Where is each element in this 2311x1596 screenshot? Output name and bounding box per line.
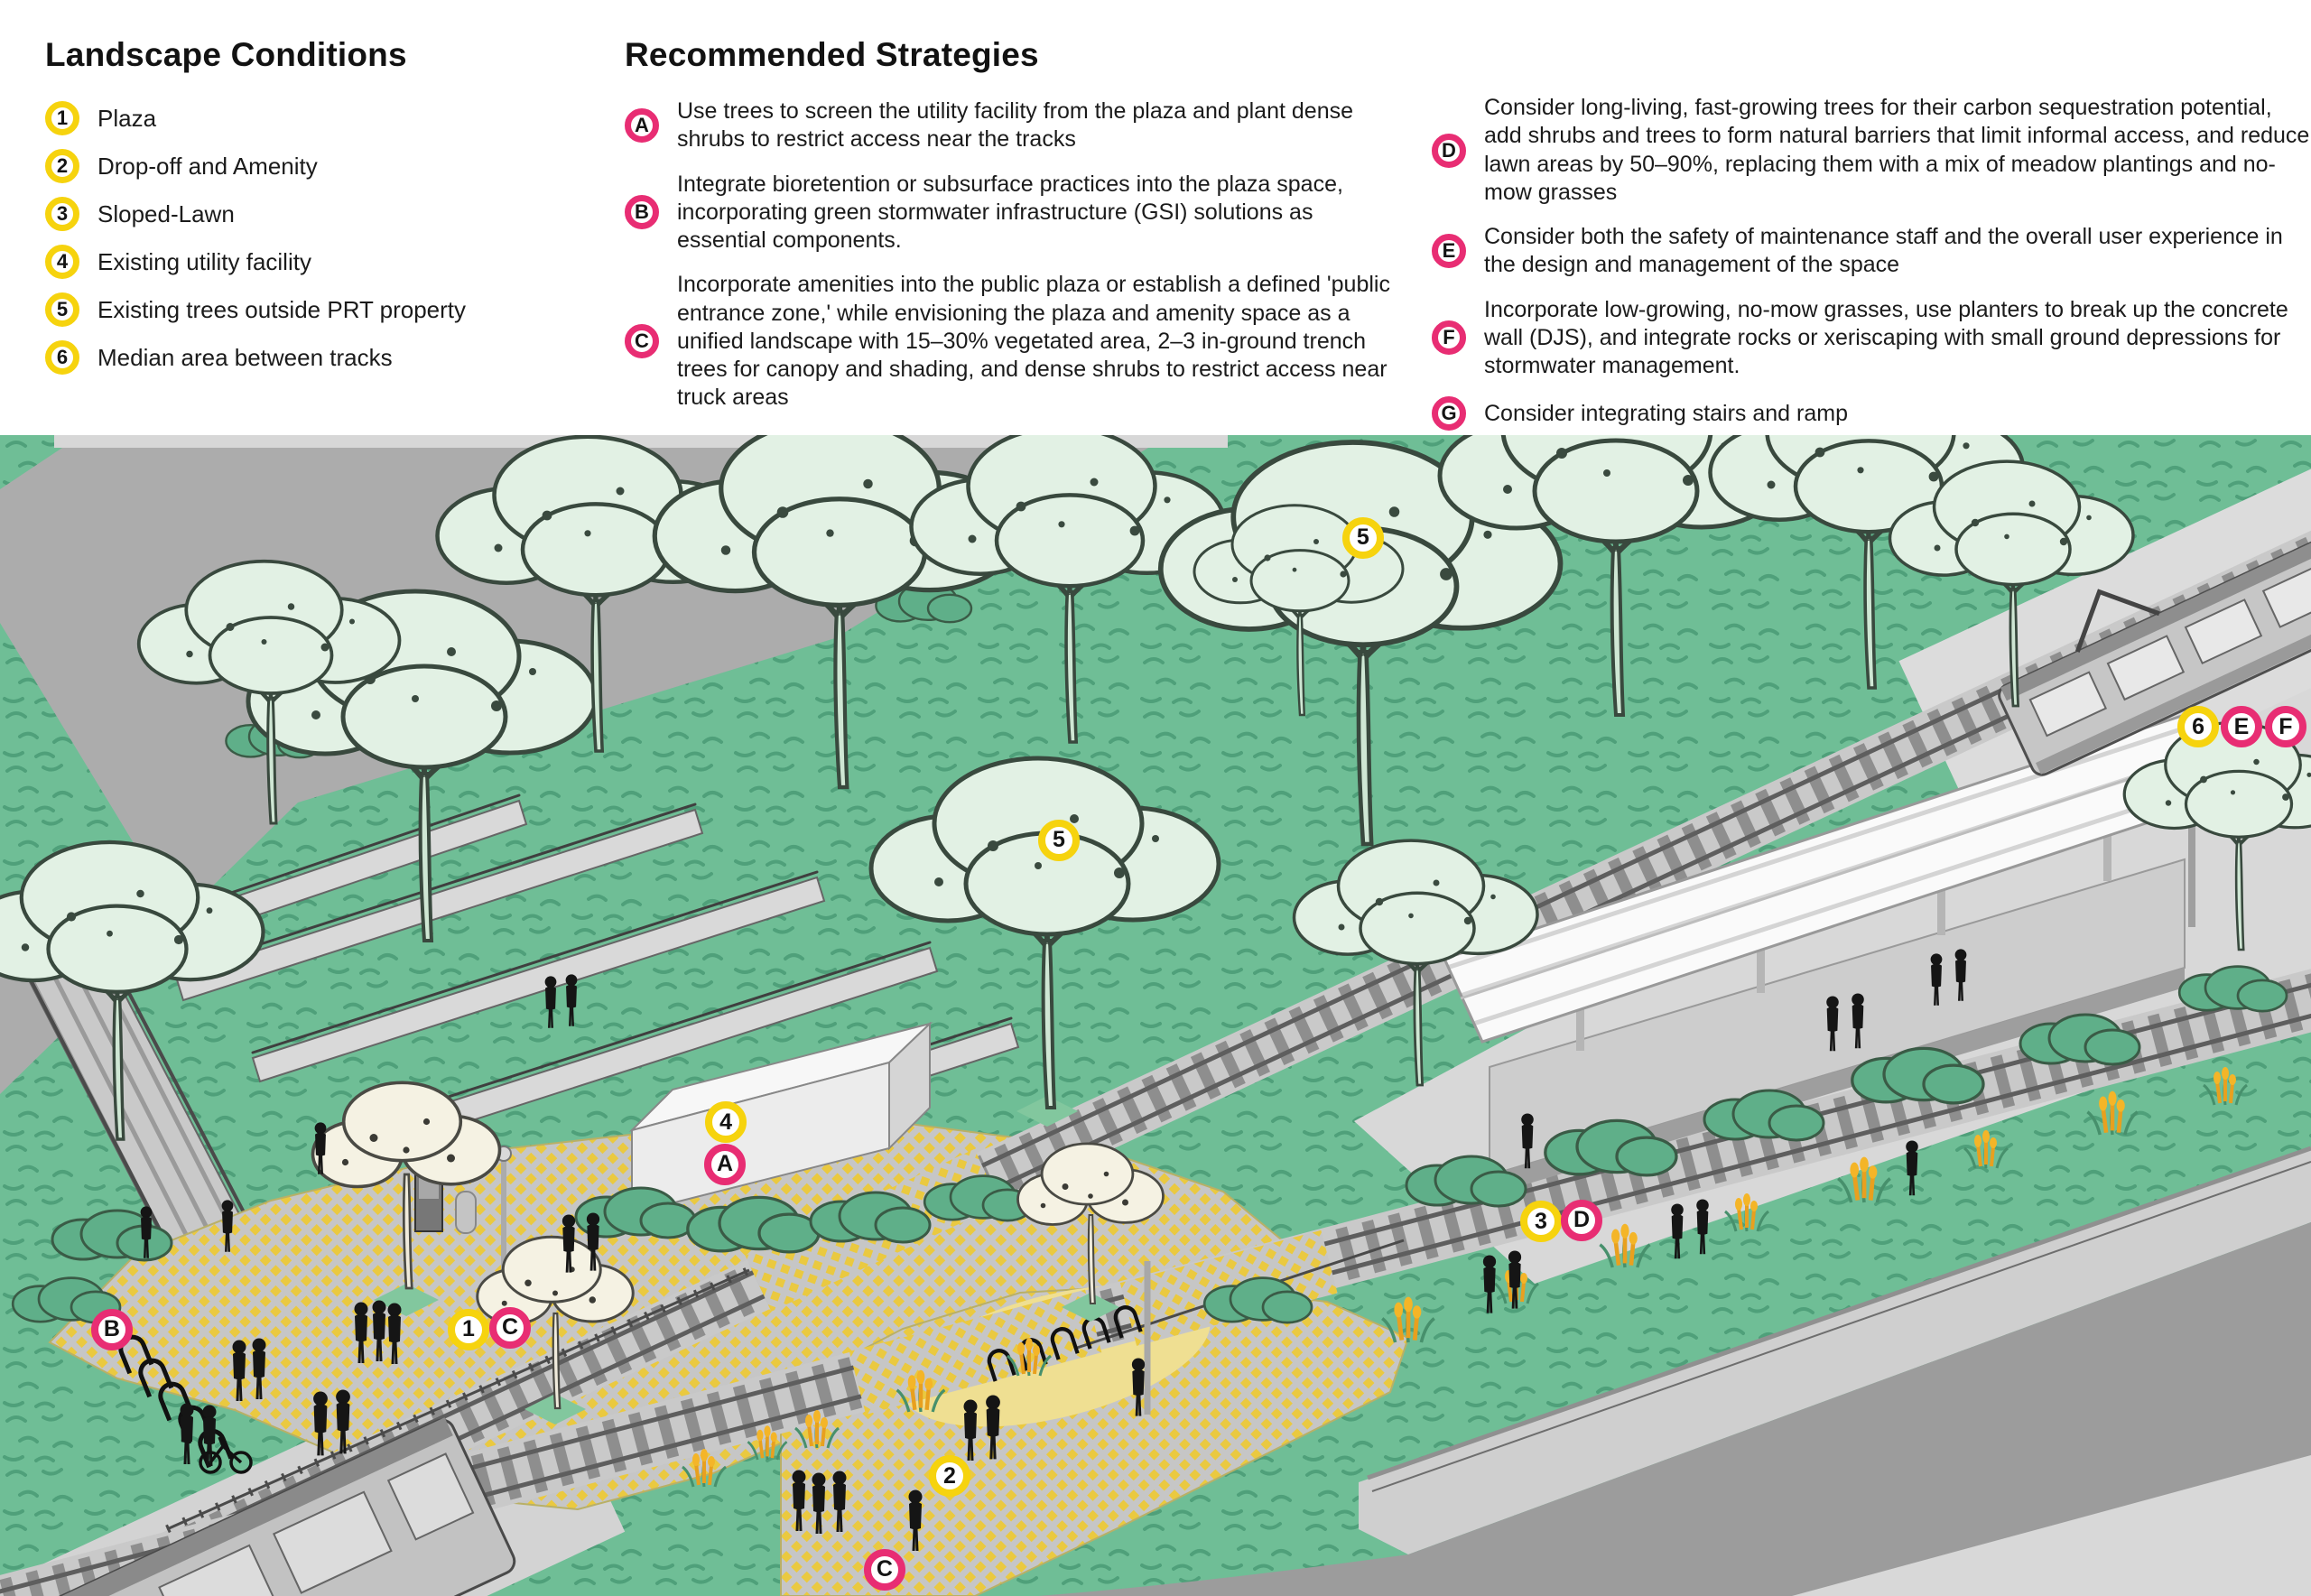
strategy-text: Incorporate amenities into the public pl… <box>677 271 1390 412</box>
strategy-letter-badge: A <box>625 108 659 143</box>
condition-label: Plaza <box>97 105 156 133</box>
map-marker-F: F <box>2265 706 2306 747</box>
strategy-item: E Consider both the safety of maintenanc… <box>1432 223 2311 280</box>
condition-label: Existing trees outside PRT property <box>97 296 466 324</box>
condition-item: 1 Plaza <box>45 101 587 135</box>
map-marker-B: B <box>91 1309 133 1350</box>
strategy-text: Consider long-living, fast-growing trees… <box>1484 94 2311 207</box>
condition-item: 2 Drop-off and Amenity <box>45 149 587 183</box>
map-marker-6: 6 <box>2177 706 2219 747</box>
marker-layer: 554A1CB2C3D6EF <box>0 435 2311 1596</box>
condition-label: Sloped-Lawn <box>97 200 235 228</box>
map-marker-3: 3 <box>1520 1201 1562 1242</box>
site-plan-illustration: 554A1CB2C3D6EF <box>0 435 2311 1596</box>
conditions-list: 1 Plaza 2 Drop-off and Amenity 3 Sloped-… <box>45 101 587 375</box>
map-marker-E: E <box>2221 706 2262 747</box>
strategy-text: Use trees to screen the utility facility… <box>677 97 1390 154</box>
condition-number-badge: 5 <box>45 292 79 327</box>
strategy-text: Incorporate low-growing, no-mow grasses,… <box>1484 296 2311 381</box>
strategy-text: Consider both the safety of maintenance … <box>1484 223 2311 280</box>
strategy-letter-badge: E <box>1432 234 1466 268</box>
condition-number-badge: 1 <box>45 101 79 135</box>
strategies-column-1: A Use trees to screen the utility facili… <box>625 97 1390 429</box>
map-marker-5: 5 <box>1038 820 1080 861</box>
landscape-conditions-legend: Landscape Conditions 1 Plaza 2 Drop-off … <box>45 36 587 388</box>
condition-item: 5 Existing trees outside PRT property <box>45 292 587 327</box>
strategy-item: A Use trees to screen the utility facili… <box>625 97 1390 154</box>
strategy-item: C Incorporate amenities into the public … <box>625 271 1390 412</box>
condition-item: 4 Existing utility facility <box>45 245 587 279</box>
condition-number-badge: 3 <box>45 197 79 231</box>
map-marker-5: 5 <box>1342 517 1384 559</box>
map-marker-C: C <box>489 1307 531 1349</box>
condition-number-badge: 6 <box>45 340 79 375</box>
strategies-column-2: D Consider long-living, fast-growing tre… <box>1432 94 2311 447</box>
strategy-text: Consider integrating stairs and ramp <box>1484 400 1848 428</box>
map-marker-1: 1 <box>448 1309 489 1350</box>
condition-label: Drop-off and Amenity <box>97 153 318 181</box>
map-marker-2: 2 <box>929 1455 970 1497</box>
strategy-item: D Consider long-living, fast-growing tre… <box>1432 94 2311 207</box>
condition-number-badge: 4 <box>45 245 79 279</box>
strategy-item: B Integrate bioretention or subsurface p… <box>625 171 1390 255</box>
strategy-letter-badge: C <box>625 324 659 358</box>
strategy-letter-badge: B <box>625 195 659 229</box>
condition-item: 6 Median area between tracks <box>45 340 587 375</box>
map-marker-4: 4 <box>705 1101 747 1143</box>
conditions-title: Landscape Conditions <box>45 36 587 74</box>
map-marker-D: D <box>1561 1200 1602 1241</box>
condition-label: Existing utility facility <box>97 248 311 276</box>
condition-label: Median area between tracks <box>97 344 393 372</box>
strategy-item: G Consider integrating stairs and ramp <box>1432 396 2311 431</box>
strategy-item: F Incorporate low-growing, no-mow grasse… <box>1432 296 2311 381</box>
strategies-title: Recommended Strategies <box>625 36 1039 74</box>
strategy-letter-badge: G <box>1432 396 1466 431</box>
strategy-letter-badge: D <box>1432 134 1466 168</box>
condition-number-badge: 2 <box>45 149 79 183</box>
strategy-letter-badge: F <box>1432 320 1466 355</box>
strategy-text: Integrate bioretention or subsurface pra… <box>677 171 1390 255</box>
condition-item: 3 Sloped-Lawn <box>45 197 587 231</box>
map-marker-C: C <box>864 1549 905 1591</box>
legend-header: Landscape Conditions 1 Plaza 2 Drop-off … <box>0 0 2311 435</box>
map-marker-A: A <box>704 1144 746 1185</box>
